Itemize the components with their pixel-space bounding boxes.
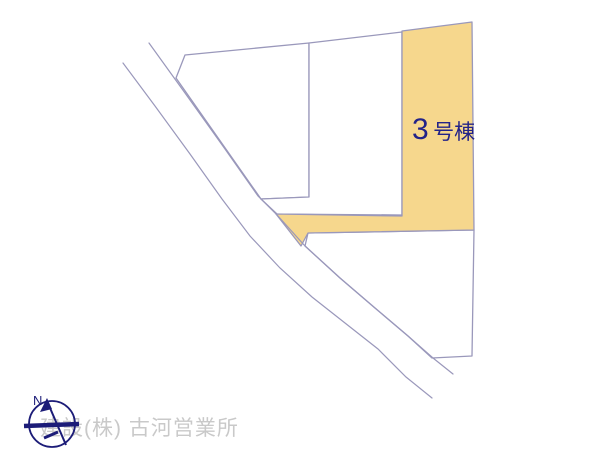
north-compass-icon: N [24,393,79,447]
plot-upper-left [176,43,309,199]
compass-crossbar [24,424,79,426]
site-plan-canvas: 建設(株) 古河営業所 3 号棟 N [0,0,600,450]
plot-3-label-suffix: 号棟 [433,121,475,144]
plot-3-label-number: 3 [412,113,429,146]
plot-lower-right [305,230,474,358]
site-plan-svg: 3 号棟 N [0,0,600,450]
compass-fin [44,432,58,438]
compass-n-label: N [33,393,42,408]
